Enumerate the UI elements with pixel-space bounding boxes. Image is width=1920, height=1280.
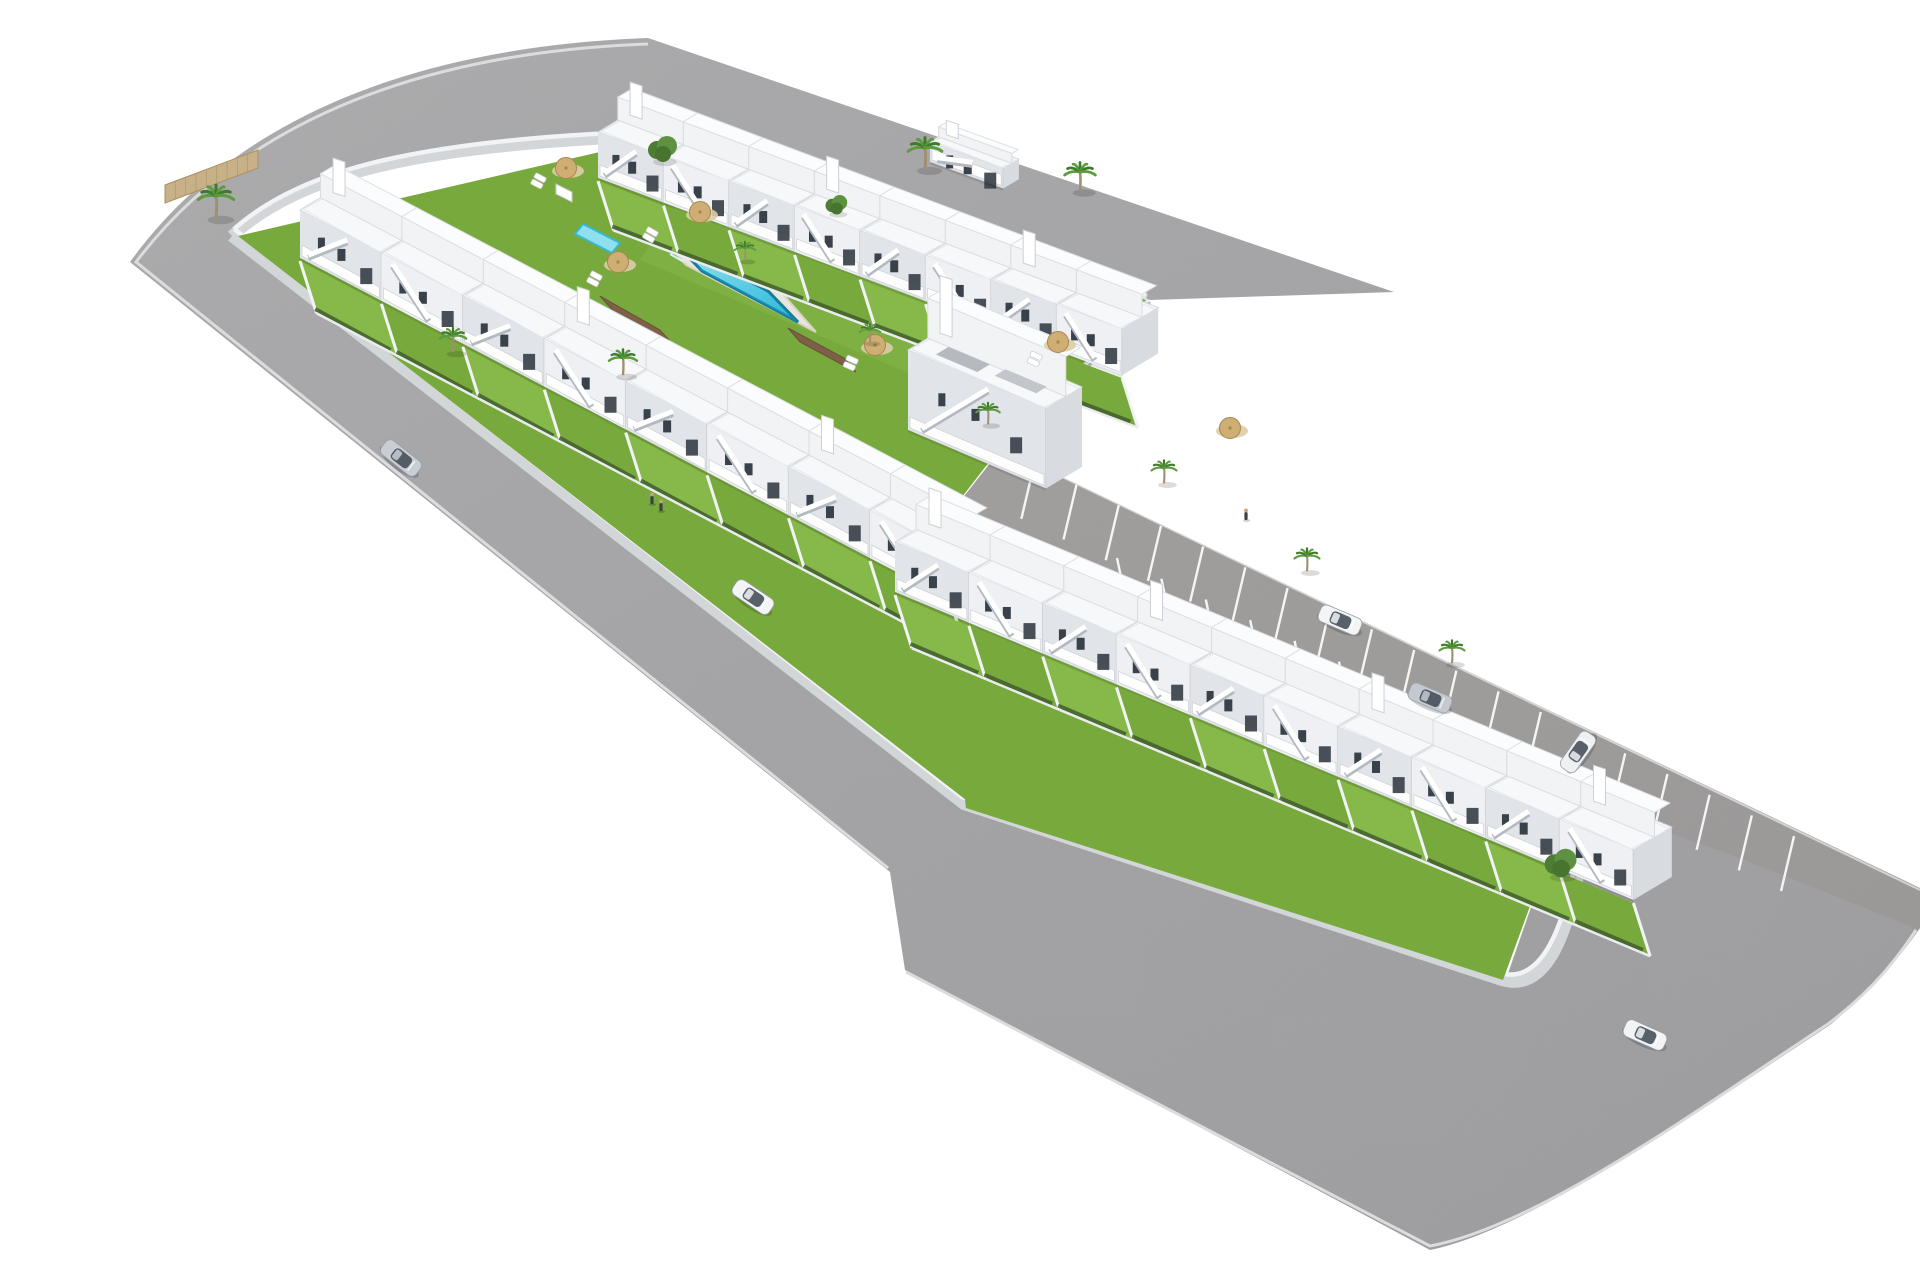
canopy [655,146,671,162]
person-body [1244,512,1247,520]
palm-shadow [447,351,467,357]
door-window [360,268,372,284]
umbrella-pole [1228,426,1231,429]
palm-shadow [616,374,637,381]
stair-tower [822,415,834,454]
door-window [1171,685,1183,701]
site-plan-render [0,0,1920,1280]
stair-tower [929,488,941,528]
door-window [1245,715,1257,731]
palm-shadow [982,423,1000,429]
window [663,420,671,432]
stair-tower [1151,580,1163,620]
architectural-render [0,0,1920,1280]
window [890,260,898,272]
stair-tower [1594,765,1606,805]
door-window [646,176,658,192]
door-window [909,274,921,290]
stair-tower [827,156,839,193]
door-window [849,525,861,541]
door-window [767,482,779,498]
person [1243,509,1250,522]
stair-tower [577,287,589,326]
window [929,576,937,588]
person-head [659,500,663,504]
palm-frond [1080,171,1095,175]
palm-shadow [1301,570,1320,576]
door-window [1467,808,1479,824]
person-head [650,493,654,497]
door-window [605,397,617,413]
parasol [1216,418,1248,439]
stair-tower [1023,230,1035,267]
door-window [1010,437,1022,453]
palm-shadow [865,342,880,347]
door-window [523,354,535,370]
door-window [1393,777,1405,793]
window [1021,310,1029,322]
door-window [1097,654,1109,670]
door-window [442,311,454,327]
door-window [1614,869,1626,885]
palm-frond [1452,648,1464,651]
palm-frond [1164,468,1176,471]
window [628,162,636,174]
palm-trunk [925,148,926,169]
window [1224,699,1232,711]
palm-tree [1152,460,1177,488]
door-window [950,592,962,608]
stair-tower [1372,673,1384,713]
door-window [686,440,698,456]
palm-shadow [1446,662,1465,668]
door-window [1023,623,1035,639]
stair-tower [630,82,642,119]
window [500,335,508,347]
stair-tower [940,276,952,338]
canopy [831,203,843,215]
window [826,506,834,518]
door-window [1105,348,1117,364]
window [1520,823,1528,835]
window [759,211,767,223]
palm-tree [1295,548,1320,576]
umbrella-pole [564,166,567,169]
person-body [650,496,653,504]
palm-trunk [216,196,217,218]
person-head [1244,509,1248,513]
door-window [1319,746,1331,762]
door-window [843,249,855,265]
palm-trunk [1080,172,1081,191]
canopy [1552,860,1570,878]
umbrella-pole [616,260,619,263]
palm-shadow [1158,482,1177,488]
window [938,393,945,406]
palm-shadow [208,216,234,224]
palm-shadow [917,167,942,175]
window [337,249,345,261]
window [1372,761,1380,773]
window [1077,638,1085,650]
door-window [1540,839,1552,855]
person-body [659,503,662,511]
palm-frond [1307,556,1319,559]
palm-shadow [740,260,755,265]
stair-tower [333,158,345,197]
umbrella-pole [1056,340,1059,343]
umbrella-pole [698,210,701,213]
door-window [778,225,790,241]
palm-shadow [1073,189,1096,196]
